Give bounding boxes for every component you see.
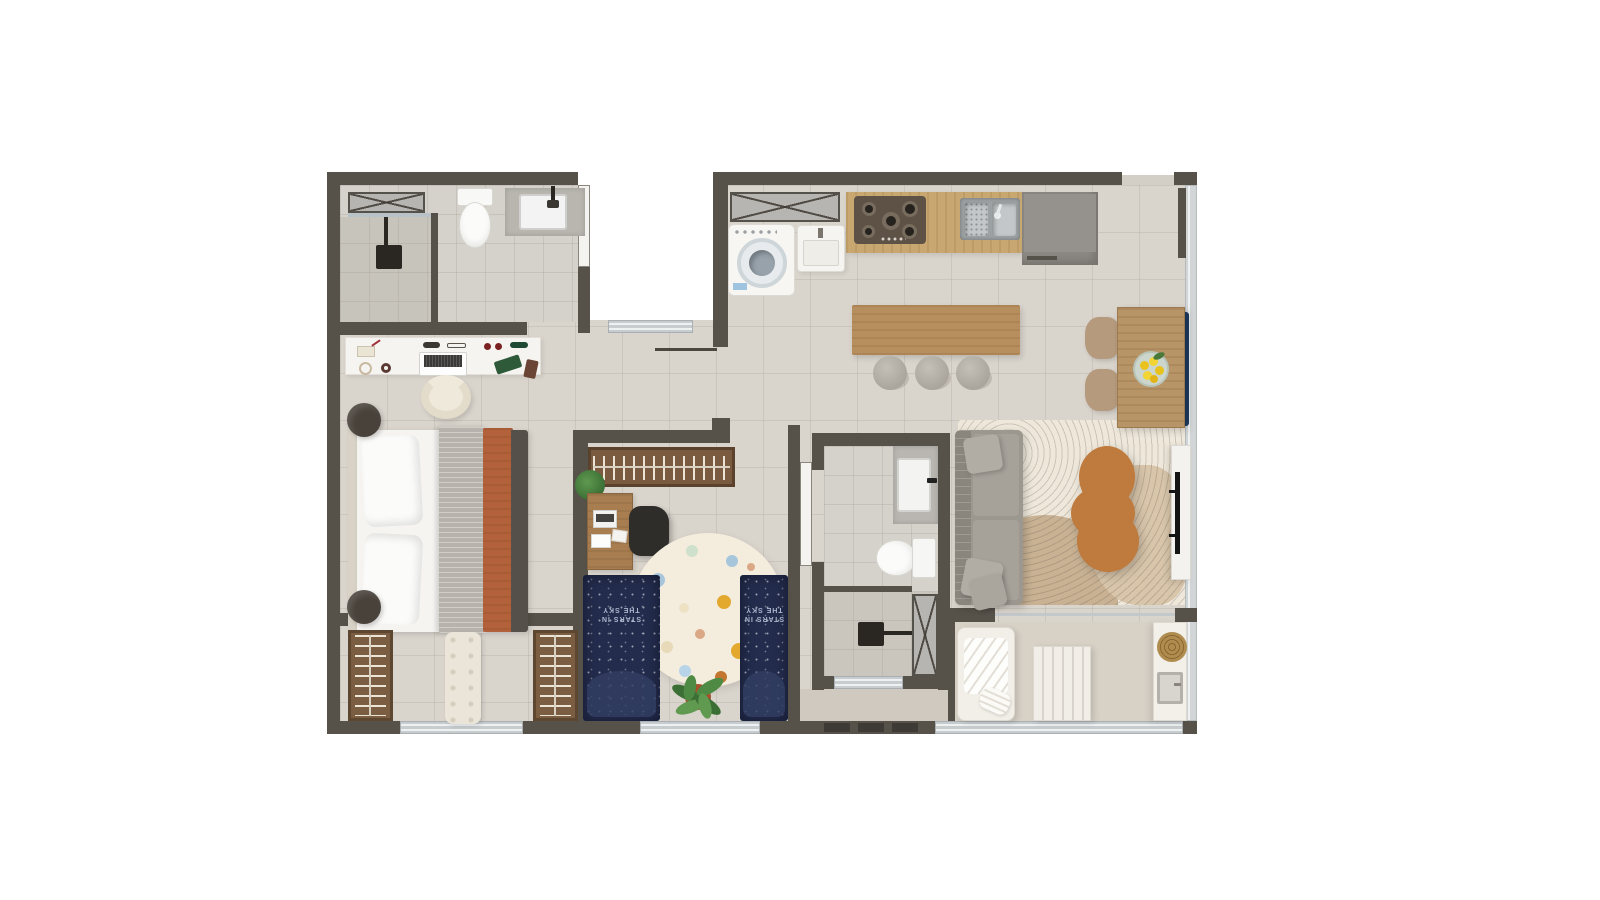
service-shaft-2 — [912, 594, 938, 676]
sunglasses — [423, 342, 440, 348]
kids-wardrobe-rail — [593, 466, 730, 468]
stool — [956, 356, 990, 390]
cabinet-top — [1024, 194, 1096, 252]
service-shaft-1 — [348, 192, 425, 213]
rug-dot — [726, 555, 738, 567]
blanket-fold — [587, 671, 656, 717]
entry-recess — [578, 172, 713, 320]
entry-threshold — [1122, 175, 1174, 185]
sink-1-basin — [519, 194, 567, 230]
kids-bed-left: STARS IN THE SKY — [583, 575, 660, 721]
refrigerator-cabinet — [1022, 192, 1098, 265]
sink-bowl-right — [992, 202, 1016, 236]
shower-2-head — [858, 622, 884, 646]
bathroom-2-wall-top — [812, 433, 950, 446]
island-counter — [852, 305, 1020, 355]
vent-grate — [858, 723, 884, 732]
exterior-wall-bottom-4 — [1183, 721, 1197, 734]
wardrobe-rail — [369, 635, 371, 716]
bathroom-1-wall — [340, 322, 527, 335]
desk-papers — [611, 529, 628, 543]
kids-wardrobe — [588, 447, 735, 487]
washing-machine — [728, 224, 795, 296]
balcony-sliding-door — [935, 721, 1183, 734]
tv-stand-arm — [1169, 534, 1179, 537]
lounge-chair — [957, 627, 1015, 721]
blanket-fold — [743, 671, 785, 717]
kids-laptop-keys — [596, 514, 614, 522]
bathroom-2-window — [834, 676, 903, 689]
washer-drum — [749, 250, 775, 276]
cabinet-handle — [1027, 256, 1057, 260]
service-ledge-floor — [800, 689, 948, 721]
kids-door-jamb — [712, 418, 730, 430]
bathroom-2-wall-left-lower — [812, 562, 824, 690]
floor-plan-canvas: STARS IN THE SKY STARS IN THE SKY — [0, 0, 1600, 900]
toilet-2-bowl — [876, 540, 916, 576]
bed-throw-gray — [439, 427, 487, 633]
washer-label — [733, 283, 747, 290]
laundry-faucet — [818, 228, 823, 238]
hall-wall — [713, 172, 728, 347]
living-balcony-wall-left — [948, 608, 995, 622]
balcony-wall-left — [948, 622, 955, 721]
cosmetic-jar — [495, 343, 502, 350]
dining-chair — [1085, 369, 1119, 411]
cooktop-knobs — [880, 237, 906, 241]
wardrobe-right — [533, 630, 578, 721]
kitchen-service-shaft — [730, 192, 840, 222]
apartment-floor-plan: STARS IN THE SKY STARS IN THE SKY — [327, 172, 1197, 734]
woven-basket — [1157, 632, 1187, 662]
stool — [873, 356, 907, 390]
rug-dot — [695, 629, 705, 639]
tv-console — [1171, 445, 1191, 580]
sofa — [955, 430, 1023, 605]
blanket-text: STARS IN THE SKY — [734, 605, 794, 623]
sink-2-faucet — [927, 478, 937, 483]
hall-door-leaf-open — [655, 348, 717, 351]
kitchen-sink — [960, 198, 1020, 240]
bathroom-2-wall-left-upper — [812, 446, 824, 470]
entry-door-leaf — [1178, 188, 1186, 258]
stool — [915, 356, 949, 390]
desk-papers — [591, 534, 611, 548]
shower-1-arm — [384, 217, 388, 247]
burner — [902, 201, 918, 217]
blanket-text: STARS IN THE SKY — [591, 605, 651, 623]
kids-room-wall-top — [573, 430, 730, 443]
bed-blanket-terracotta — [483, 428, 513, 632]
dining-chair — [1085, 317, 1119, 359]
exterior-wall-top-middle — [728, 172, 1122, 185]
lemon-bowl — [1133, 351, 1169, 387]
watch — [381, 363, 391, 373]
lemon-leaf — [1152, 351, 1165, 362]
tv-stand-arm — [1169, 490, 1179, 493]
burner-center — [882, 212, 900, 230]
gas-cooktop — [854, 196, 926, 244]
shower-1-glass — [348, 213, 431, 217]
bathroom-2-wall-bottom-cap1 — [824, 676, 834, 689]
burner — [862, 202, 876, 216]
sink-2-basin — [897, 458, 931, 512]
balcony-sink — [1157, 672, 1183, 704]
exterior-wall-top-right — [1174, 172, 1197, 185]
bathroom-2-door-leaf — [800, 462, 812, 566]
vent-grate — [892, 723, 918, 732]
laundry-sink — [797, 225, 845, 272]
bed-pillow — [361, 435, 424, 528]
lemon — [1140, 361, 1149, 370]
entry-jamb-wall — [578, 267, 590, 333]
green-sunglasses — [510, 342, 528, 348]
kids-wardrobe-hangers — [593, 456, 730, 480]
shower-1-head — [376, 245, 402, 269]
wardrobe-rail — [554, 635, 556, 716]
bathroom-2-wall-bottom-cap2 — [903, 676, 950, 689]
toilet-1-bowl — [459, 202, 491, 248]
toilet-2-tank — [912, 538, 936, 578]
shower-1-partition-wall — [431, 213, 438, 322]
laundry-sink-basin — [803, 240, 839, 266]
rug-dot — [717, 595, 731, 609]
washer-controls — [733, 228, 777, 236]
balcony-glass-door-track — [995, 613, 1175, 616]
lounge-towel — [964, 638, 1008, 694]
desk-card — [357, 346, 375, 357]
living-balcony-wall-right — [1175, 608, 1197, 622]
exterior-wall-top-left — [327, 172, 578, 185]
coffee-table-lobe — [1077, 510, 1139, 572]
rug-dot — [661, 641, 673, 653]
kids-bed-right: STARS IN THE SKY — [740, 575, 788, 721]
lemon — [1155, 366, 1164, 375]
kids-plant — [667, 667, 729, 729]
rug-dot — [747, 563, 755, 571]
sink-1-faucet-head — [547, 200, 559, 208]
plant-leaf — [696, 692, 714, 720]
closet-bench — [445, 632, 481, 724]
sink-bowl-left — [964, 202, 988, 236]
slatted-table — [1033, 646, 1091, 721]
shower-2-partition — [824, 586, 912, 592]
pouf-nightstand — [347, 403, 381, 437]
burner — [862, 225, 875, 238]
pouf-nightstand — [347, 590, 381, 624]
coffee-table — [1071, 446, 1141, 572]
eyeglasses — [447, 343, 466, 348]
rug-dot — [679, 603, 689, 613]
entry-sliding-door — [608, 320, 693, 333]
rug-dot — [686, 545, 698, 557]
necklace — [359, 362, 372, 375]
kids-room-wall-right — [788, 425, 800, 734]
tv — [1175, 472, 1180, 554]
lemon — [1150, 375, 1158, 383]
exterior-wall-left — [327, 172, 340, 734]
balcony-sink-faucet — [1174, 683, 1181, 686]
vanity-chair — [421, 375, 471, 419]
laptop-keyboard — [424, 355, 462, 367]
sofa-pillow — [962, 433, 1003, 474]
wardrobe-left — [348, 630, 393, 721]
cosmetic-jar — [484, 343, 491, 350]
bed-frame-edge — [511, 430, 528, 632]
vent-grate — [824, 723, 850, 732]
exterior-wall-bottom-1 — [327, 721, 400, 734]
